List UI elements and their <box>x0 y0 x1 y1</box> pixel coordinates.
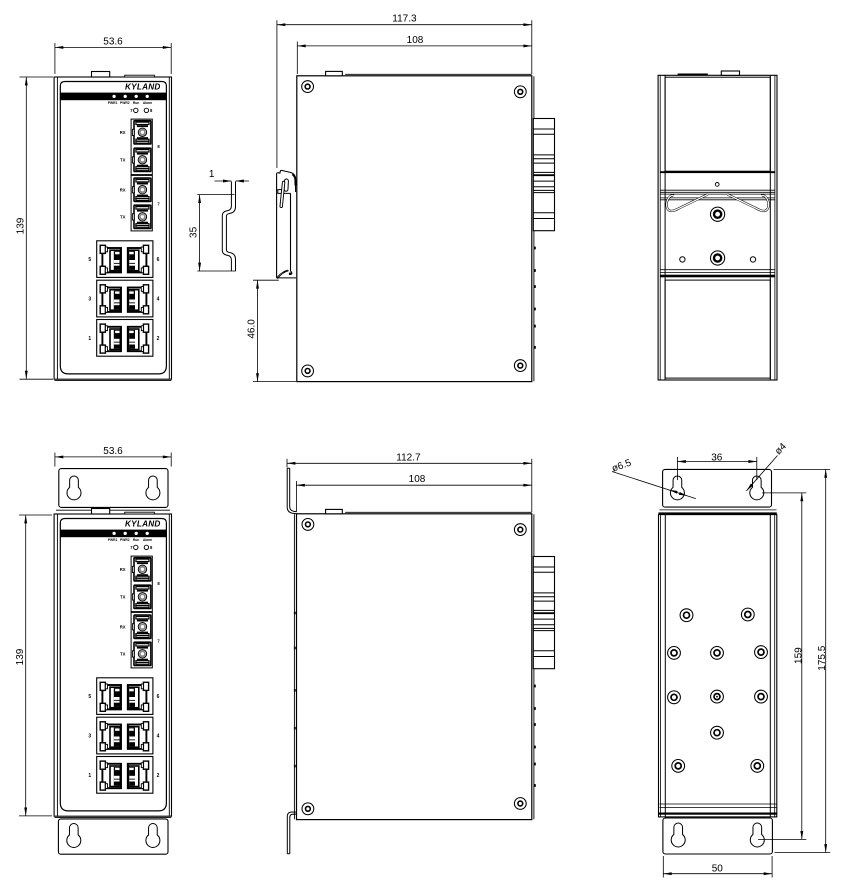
svg-text:53.6: 53.6 <box>103 446 123 457</box>
svg-text:159: 159 <box>793 647 804 664</box>
svg-text:46.0: 46.0 <box>246 319 257 339</box>
svg-text:175.5: 175.5 <box>817 645 828 670</box>
svg-text:139: 139 <box>15 217 26 234</box>
svg-text:117.3: 117.3 <box>392 14 417 25</box>
svg-text:139: 139 <box>15 648 26 665</box>
svg-text:1: 1 <box>209 169 215 180</box>
svg-text:35: 35 <box>188 226 199 238</box>
svg-text:112.7: 112.7 <box>396 452 421 463</box>
svg-text:36: 36 <box>711 453 723 464</box>
svg-text:108: 108 <box>409 474 426 485</box>
svg-text:53.6: 53.6 <box>103 36 123 47</box>
svg-text:50: 50 <box>712 863 724 874</box>
svg-text:108: 108 <box>407 35 424 46</box>
